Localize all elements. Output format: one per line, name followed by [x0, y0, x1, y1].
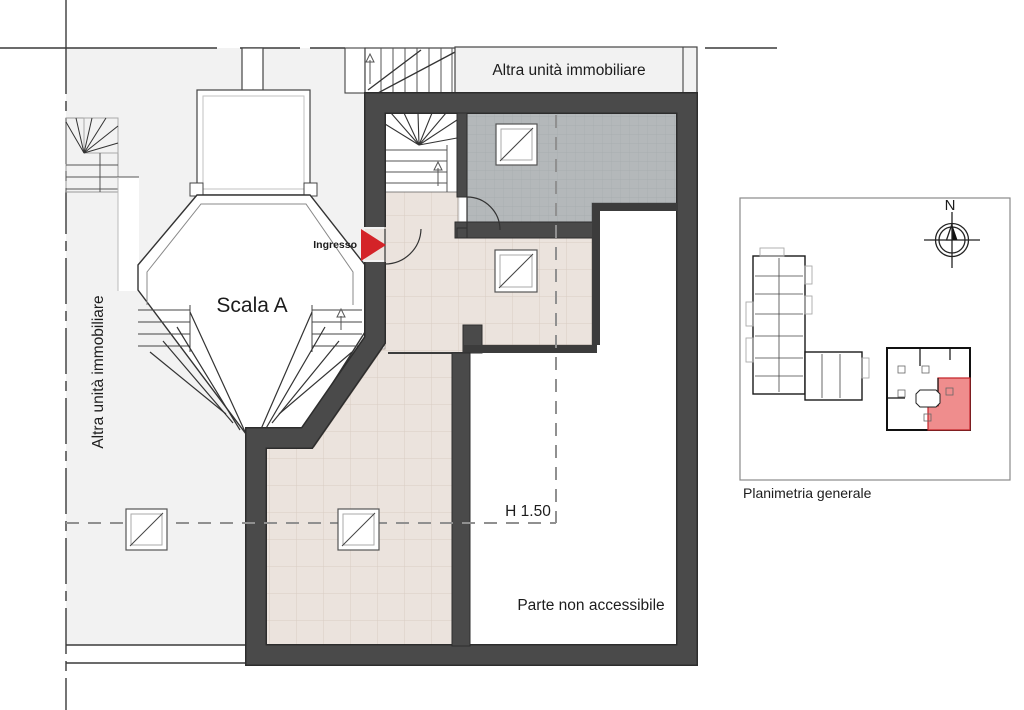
unit-internal-stair [385, 113, 457, 192]
top-strip: Altra unità immobiliare [345, 47, 697, 93]
stairwell-label: Scala A [216, 294, 287, 317]
skylight-terrace [496, 124, 537, 165]
stair-tower-surround [118, 177, 139, 291]
height-note-label: H 1.50 [505, 503, 551, 520]
tower-notch-right [304, 183, 317, 196]
key-plan-stairwell-icon [916, 390, 940, 407]
terrace-divider-wall [457, 113, 467, 197]
floor-plan-page: Altra unità immobiliare [0, 0, 1024, 710]
key-plan-caption: Planimetria generale [743, 485, 872, 501]
inaccessible-top-wall [592, 203, 677, 211]
skylight-left-roof [126, 509, 167, 550]
mid-room-bottom-wall [463, 345, 597, 353]
tower-neck [242, 48, 263, 94]
other-unit-top-label: Altra unità immobiliare [492, 62, 645, 79]
skylight-lower-room [338, 509, 379, 550]
top-stair-box [365, 48, 460, 93]
terrace-bottom-wall [455, 222, 597, 238]
inaccessible-label: Parte non accessibile [517, 597, 664, 614]
key-plan-building-subject [887, 348, 970, 430]
other-unit-left-label: Altra unità immobiliare [90, 295, 107, 448]
key-plan: N [740, 197, 1010, 501]
floor-plan-drawing: Altra unità immobiliare [0, 0, 1024, 710]
lower-room-right-wall [452, 353, 470, 646]
tower-top [197, 90, 310, 195]
tower-notch-left [190, 183, 203, 196]
inaccessible-left-wall [592, 203, 600, 345]
north-label: N [945, 197, 956, 214]
top-small-box [345, 48, 365, 93]
entrance-label: Ingresso [313, 239, 357, 251]
skylight-middle-room [495, 250, 537, 292]
